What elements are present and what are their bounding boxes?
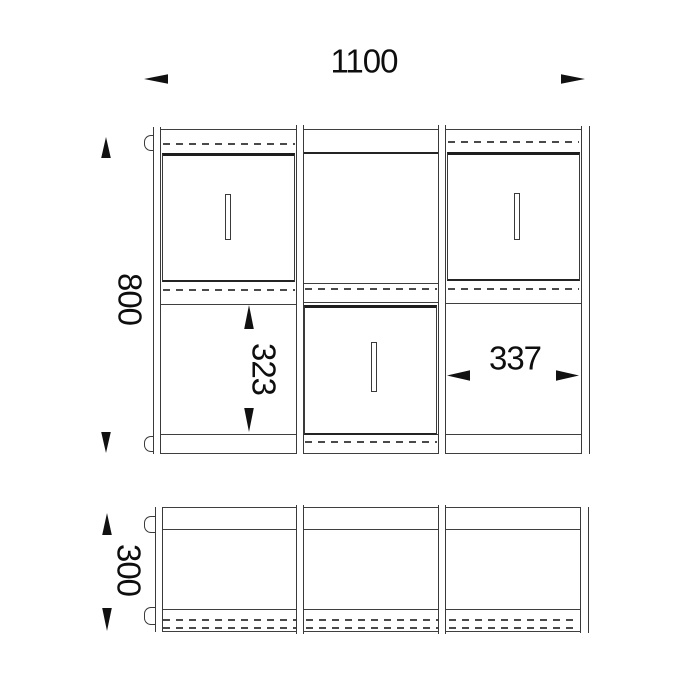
arrowhead-down-icon bbox=[101, 432, 111, 453]
technical-drawing-canvas: 1100 800 323 337 300 bbox=[0, 0, 700, 700]
dim-label-overall-height: 800 bbox=[114, 273, 147, 325]
arrowhead-up-icon bbox=[101, 137, 111, 158]
arrowhead-right-icon bbox=[561, 74, 585, 84]
arrowhead-up-icon bbox=[244, 305, 254, 329]
dim-label-compartment-height: 323 bbox=[248, 343, 281, 395]
arrowhead-right-icon bbox=[556, 370, 579, 381]
arrowhead-left-icon bbox=[144, 74, 168, 84]
arrowhead-down-icon bbox=[244, 408, 254, 432]
dim-label-compartment-width: 337 bbox=[489, 342, 541, 375]
dim-label-depth: 300 bbox=[113, 544, 146, 596]
arrowhead-left-icon bbox=[447, 370, 470, 381]
dim-label-overall-width: 1100 bbox=[331, 45, 398, 78]
arrowhead-up-icon bbox=[102, 513, 112, 535]
arrowhead-down-icon bbox=[102, 608, 112, 631]
dimension-annotations: 1100 800 323 337 300 bbox=[0, 0, 700, 700]
